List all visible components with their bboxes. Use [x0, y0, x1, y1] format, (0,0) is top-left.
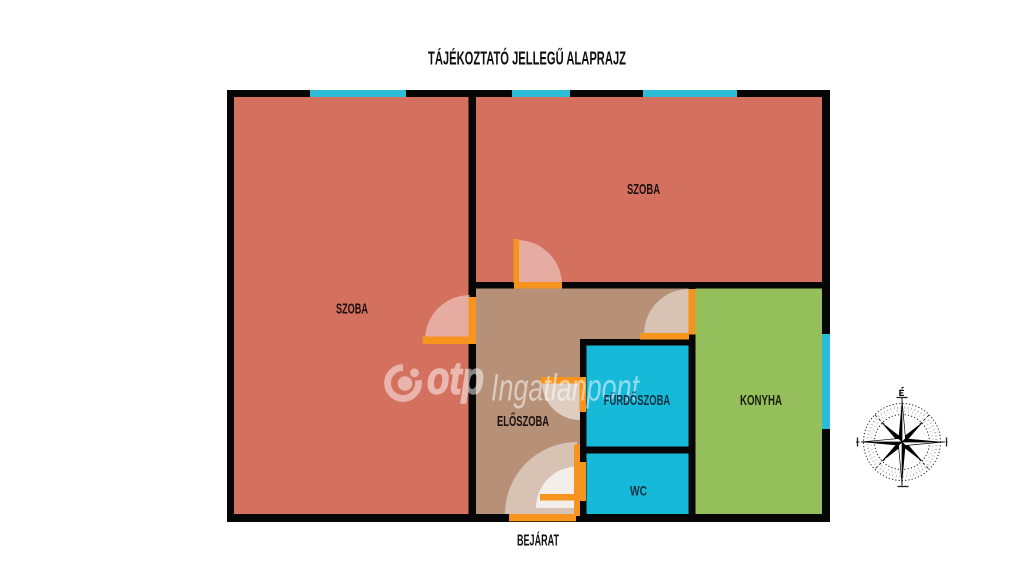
svg-text:WC: WC: [630, 483, 647, 499]
svg-text:SZOBA: SZOBA: [336, 300, 368, 317]
svg-text:BEJÁRAT: BEJÁRAT: [517, 531, 559, 550]
svg-text:SZOBA: SZOBA: [627, 181, 660, 198]
svg-text:otp: otp: [427, 353, 484, 404]
svg-text:FÜRDŐSZOBA: FÜRDŐSZOBA: [604, 391, 671, 409]
svg-text:KONYHA: KONYHA: [740, 393, 782, 409]
svg-text:ELŐSZOBA: ELŐSZOBA: [497, 412, 549, 430]
svg-text:TÁJÉKOZTATÓ JELLEGŰ ALAPRAJZ: TÁJÉKOZTATÓ JELLEGŰ ALAPRAJZ: [428, 48, 626, 69]
